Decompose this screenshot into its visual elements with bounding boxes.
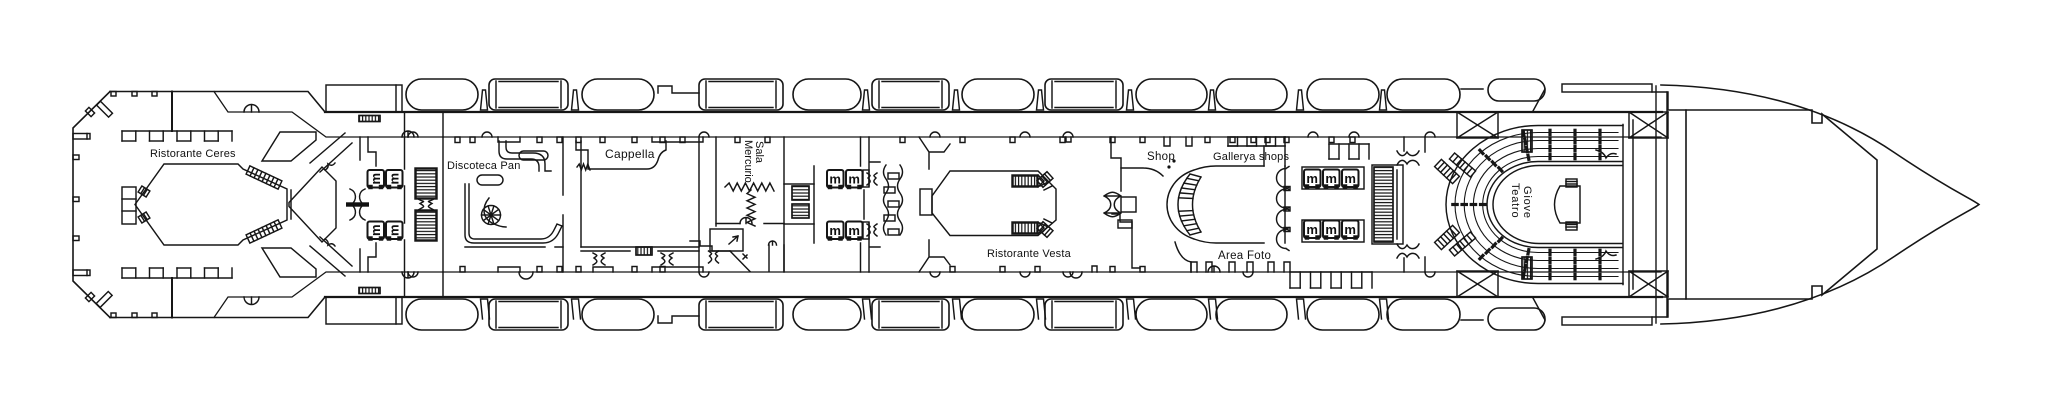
svg-text:Ristorante Vesta: Ristorante Vesta [987, 248, 1072, 260]
svg-text:Cappella: Cappella [605, 147, 655, 161]
svg-text:Teatro: Teatro [1509, 183, 1521, 218]
svg-text:m: m [848, 172, 860, 187]
svg-text:Giove: Giove [1521, 186, 1533, 219]
svg-text:Discoteca Pan: Discoteca Pan [447, 160, 521, 172]
svg-text:Mercurio: Mercurio [742, 140, 754, 183]
svg-text:m: m [1344, 222, 1356, 237]
svg-text:m: m [848, 223, 860, 238]
svg-text:m: m [1306, 222, 1318, 237]
svg-text:m: m [1306, 171, 1318, 186]
svg-text:m: m [1325, 222, 1337, 237]
svg-text:m: m [829, 223, 841, 238]
svg-text:m: m [829, 172, 841, 187]
svg-text:Gallerya shops: Gallerya shops [1213, 151, 1289, 163]
svg-text:m: m [387, 224, 402, 236]
svg-text:Area Foto: Area Foto [1218, 250, 1271, 262]
svg-text:m: m [1325, 171, 1337, 186]
svg-text:Ristorante Ceres: Ristorante Ceres [150, 148, 236, 160]
svg-text:m: m [1344, 171, 1356, 186]
svg-text:m: m [368, 224, 383, 236]
svg-text:m: m [387, 173, 402, 185]
svg-text:Shop: Shop [1147, 151, 1175, 163]
svg-text:m: m [368, 173, 383, 185]
